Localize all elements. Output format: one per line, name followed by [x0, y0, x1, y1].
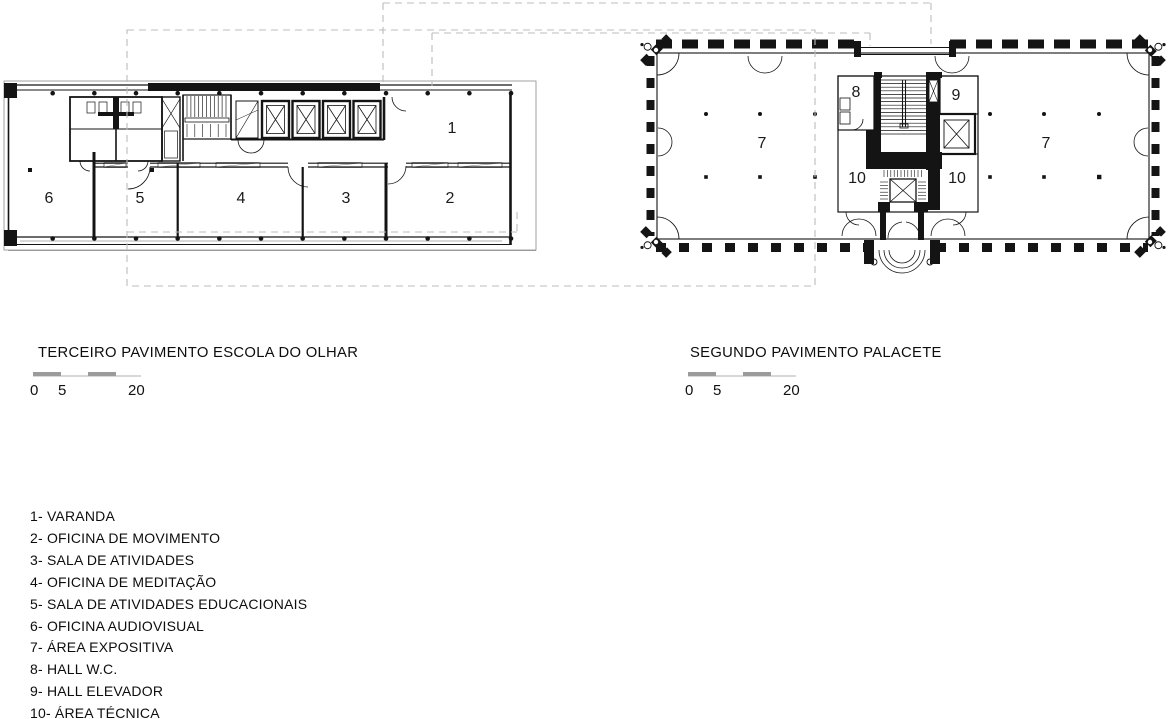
door-arc: [931, 219, 948, 236]
wall-rect: [183, 95, 231, 139]
wall-rect: [878, 202, 890, 212]
column-dot: [217, 236, 222, 241]
elevator-bank: [262, 101, 381, 138]
door-arc: [1127, 217, 1149, 239]
legend-item: 4- OFICINA DE MEDITAÇÃO: [30, 572, 307, 594]
column-dot: [342, 91, 347, 96]
room-label-movimento: 2: [446, 190, 455, 208]
room-label-audiovisual: 6: [45, 190, 54, 208]
door-arc: [658, 142, 672, 156]
legend-item: 2- OFICINA DE MOVIMENTO: [30, 528, 307, 550]
column-dot: [704, 112, 708, 116]
legend-item: 6- OFICINA AUDIOVISUAL: [30, 616, 307, 638]
door-arc: [657, 217, 679, 239]
scale-label-5: 5: [713, 382, 721, 399]
right-building-palacete: [640, 37, 1165, 273]
column-dot: [384, 91, 389, 96]
scale-label-20: 20: [783, 382, 800, 399]
room-label-tecnica-left: 10: [848, 170, 866, 188]
site-outline: [4, 81, 536, 250]
scale-label-0: 0: [30, 382, 38, 399]
column-dot: [467, 91, 472, 96]
column-dot: [50, 236, 55, 241]
column-dot: [92, 236, 97, 241]
door-arc: [906, 222, 920, 238]
column-dot: [92, 91, 97, 96]
door-arc: [948, 219, 965, 236]
column-dot: [509, 91, 514, 96]
door-arc: [388, 166, 406, 184]
wall-rect: [928, 168, 940, 210]
legend-item: 8- HALL W.C.: [30, 659, 307, 681]
service-shaft: [162, 97, 180, 161]
room-legend: 1- VARANDA 2- OFICINA DE MOVIMENTO 3- SA…: [30, 506, 307, 719]
column-dot: [425, 91, 430, 96]
dashed-overlay-footprints: [127, 3, 931, 286]
balcony: [949, 41, 956, 57]
column-dot: [1097, 112, 1101, 116]
door-arc: [238, 140, 251, 153]
column-dot: [342, 236, 347, 241]
column-dot: [175, 236, 180, 241]
room-label-expositiva-left: 7: [758, 135, 767, 153]
legend-item: 3- SALA DE ATIVIDADES: [30, 550, 307, 572]
wc-fixture: [133, 102, 141, 113]
door-arc: [852, 119, 863, 130]
corner-ornament: [1148, 240, 1152, 244]
legend-item: 7- ÁREA EXPOSITIVA: [30, 637, 307, 659]
wall-rect: [874, 72, 882, 78]
room-label-hall-wc: 8: [852, 84, 861, 102]
room-label-atividades: 3: [342, 190, 351, 208]
scale-bar-segment: [743, 372, 771, 376]
wall-line: [236, 101, 258, 138]
room-label-expositiva-right: 7: [1042, 135, 1051, 153]
plan1-title: TERCEIRO PAVIMENTO ESCOLA DO OLHAR: [38, 345, 358, 361]
wc-fixture: [840, 98, 850, 110]
column-square: [1042, 175, 1046, 179]
wall-rect: [185, 118, 229, 122]
column-dot: [134, 91, 139, 96]
door-arc: [251, 140, 264, 153]
scale-bar-segment: [688, 372, 716, 376]
column-dot: [134, 236, 139, 241]
wall-rect: [900, 124, 908, 128]
door-arc: [888, 222, 902, 238]
column-square: [150, 168, 154, 172]
column-dot: [175, 91, 180, 96]
door-arc: [1134, 128, 1148, 142]
room-label-hall-elevador: 9: [952, 87, 961, 105]
column-square: [988, 175, 992, 179]
corner-ornament: [654, 240, 658, 244]
wall-rect: [914, 202, 928, 212]
column-dot: [467, 236, 472, 241]
portico-steps: [889, 250, 915, 263]
door-arc: [952, 56, 969, 73]
column-dot: [1042, 112, 1046, 116]
door-arc: [657, 53, 679, 75]
door-arc: [658, 128, 672, 142]
wc-block: [70, 97, 162, 171]
column-dot: [9, 236, 14, 241]
corner-ornament: [1155, 43, 1162, 50]
scale-bar-segment: [33, 372, 61, 376]
door-arc: [392, 97, 406, 111]
wc-fixture: [87, 102, 95, 113]
door-arc: [935, 56, 952, 73]
wall-rect: [866, 130, 878, 154]
door-arc: [859, 219, 876, 236]
plan2-title: SEGUNDO PAVIMENTO PALACETE: [690, 345, 942, 361]
entrance-portico: [864, 212, 940, 273]
door-arc: [288, 167, 308, 187]
room-label-educacionais: 5: [136, 190, 145, 208]
column-dot: [425, 236, 430, 241]
wall-rect: [866, 152, 942, 169]
door-arc: [128, 167, 150, 189]
wall-rect: [98, 112, 134, 116]
scale-label-0: 0: [685, 382, 693, 399]
door-arc: [765, 56, 782, 73]
column-dot: [217, 91, 222, 96]
corner-ornament: [640, 43, 643, 46]
portico-steps: [879, 250, 925, 273]
column-dot: [300, 236, 305, 241]
column-dot: [50, 91, 55, 96]
scale-bar-plan1: 0 5 20: [33, 370, 141, 402]
corner-ornament: [644, 43, 651, 50]
door-arc: [953, 212, 966, 225]
corner-ornament: [640, 246, 643, 249]
column-dot: [300, 91, 305, 96]
corner-ornament: [1155, 242, 1162, 249]
grand-stair: [881, 80, 926, 134]
corner-ornament: [1162, 246, 1165, 249]
column-dot: [259, 91, 264, 96]
floorplan-sheet: 1 2 3 4 5 6 7 7 8 9 10 10 TERCEIRO PAVIM…: [0, 0, 1170, 719]
corner-ornament: [644, 242, 651, 249]
column-square: [1097, 175, 1101, 179]
column-dot: [509, 236, 514, 241]
wc-fixture: [99, 102, 107, 113]
corner-ornament: [1148, 48, 1152, 52]
corner-ornament: [654, 48, 658, 52]
room-label-meditacao: 4: [237, 190, 246, 208]
column-dot: [259, 236, 264, 241]
wall-line: [236, 110, 258, 120]
wall-rect: [4, 83, 17, 98]
column-square: [758, 175, 762, 179]
wall-rect: [880, 212, 886, 240]
scale-bar-plan2: 0 5 20: [688, 370, 796, 402]
scale-label-20: 20: [128, 382, 145, 399]
legend-item: 10- ÁREA TÉCNICA: [30, 703, 307, 719]
room-label-tecnica-right: 10: [948, 170, 966, 188]
column-square: [28, 168, 32, 172]
balcony: [854, 41, 861, 57]
wall-rect: [930, 240, 940, 264]
scale-bar-segment: [88, 372, 116, 376]
legend-item: 9- HALL ELEVADOR: [30, 681, 307, 703]
secondary-stair: [880, 170, 926, 202]
column-square: [704, 175, 708, 179]
wall-rect: [864, 240, 874, 264]
core-top-wall: [148, 83, 380, 91]
wall-rect: [165, 131, 178, 158]
corner-ornament: [1162, 43, 1165, 46]
legend-item: 5- SALA DE ATIVIDADES EDUCACIONAIS: [30, 594, 307, 616]
stair-escola: [183, 95, 231, 161]
column-dot: [758, 112, 762, 116]
wc-fixture: [840, 112, 850, 124]
door-arc: [1127, 53, 1149, 75]
wc-fixture: [121, 102, 129, 113]
room-label-varanda: 1: [448, 120, 457, 138]
door-arc: [80, 161, 90, 171]
legend-item: 1- VARANDA: [30, 506, 307, 528]
wall-rect: [918, 212, 924, 240]
door-arc: [1134, 142, 1148, 156]
left-building-escola-do-olhar: [4, 81, 536, 251]
column-dot: [384, 236, 389, 241]
door-arc: [138, 161, 148, 171]
column-dot: [9, 91, 14, 96]
scale-label-5: 5: [58, 382, 66, 399]
column-dot: [988, 112, 992, 116]
door-arc: [748, 56, 765, 73]
